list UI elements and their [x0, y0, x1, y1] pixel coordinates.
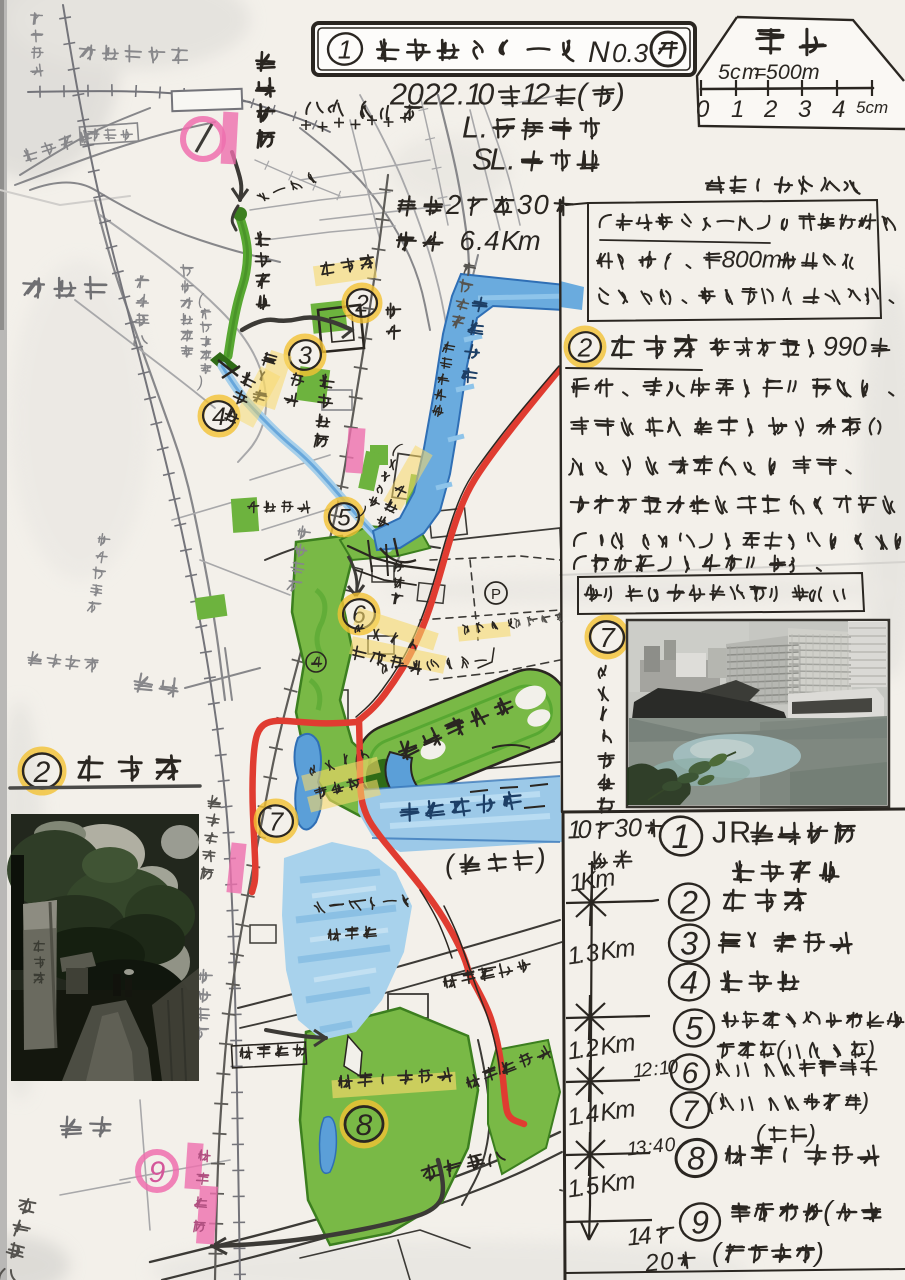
svg-text:.: .: [480, 111, 489, 145]
svg-text:2: 2: [532, 78, 550, 112]
svg-text:2: 2: [763, 96, 777, 123]
svg-text:8: 8: [722, 247, 736, 274]
svg-text:5: 5: [718, 60, 730, 84]
svg-text:9: 9: [691, 1205, 709, 1241]
svg-text:3: 3: [798, 96, 812, 123]
svg-text:m: m: [518, 225, 541, 256]
svg-text:3: 3: [298, 342, 312, 370]
svg-text:5: 5: [337, 505, 351, 532]
svg-text:3: 3: [614, 814, 629, 842]
svg-text:5: 5: [685, 1011, 703, 1047]
svg-text:.: .: [476, 225, 484, 256]
svg-text:m: m: [613, 1167, 637, 1197]
svg-text:J: J: [712, 816, 727, 850]
svg-text:3: 3: [680, 926, 698, 962]
svg-text:0.3: 0.3: [612, 38, 649, 68]
svg-text:4: 4: [680, 965, 698, 1001]
svg-text:0: 0: [534, 189, 550, 220]
svg-text:.: .: [507, 143, 516, 177]
svg-text:1: 1: [672, 818, 691, 856]
svg-text:7: 7: [599, 622, 616, 653]
svg-text:9: 9: [838, 331, 853, 361]
svg-text:2: 2: [439, 78, 457, 112]
svg-text:2: 2: [577, 332, 593, 362]
svg-text:1: 1: [731, 96, 744, 123]
svg-text:m: m: [613, 934, 637, 964]
svg-text:1: 1: [338, 34, 352, 64]
svg-text:0: 0: [577, 816, 592, 844]
svg-text:N: N: [588, 36, 610, 69]
svg-text:0: 0: [627, 814, 642, 842]
svg-text:2: 2: [354, 291, 368, 318]
svg-text:7: 7: [682, 1095, 700, 1128]
svg-text:4: 4: [832, 96, 845, 123]
svg-text:8: 8: [687, 1141, 705, 1177]
svg-text:5cm: 5cm: [856, 98, 888, 117]
svg-text:0: 0: [748, 247, 762, 274]
svg-text:m: m: [762, 247, 782, 274]
svg-text:6: 6: [460, 225, 476, 256]
svg-text:6: 6: [682, 1057, 699, 1090]
svg-text:): ): [196, 374, 203, 391]
svg-text:4: 4: [212, 403, 226, 431]
svg-text:2: 2: [445, 189, 461, 220]
svg-text:4: 4: [484, 225, 499, 256]
svg-text:P: P: [491, 586, 501, 603]
svg-text:m: m: [802, 60, 820, 84]
svg-text:0: 0: [735, 247, 749, 274]
svg-text:7: 7: [269, 806, 285, 836]
svg-text:4: 4: [637, 1222, 653, 1250]
svg-text:8: 8: [356, 1109, 373, 1142]
svg-text:2: 2: [679, 885, 698, 921]
svg-text:m: m: [613, 1029, 637, 1059]
svg-text:0: 0: [778, 60, 790, 84]
svg-text:L: L: [490, 143, 507, 177]
svg-text:0: 0: [696, 96, 710, 123]
svg-text:2: 2: [423, 78, 441, 112]
svg-text:R: R: [729, 816, 751, 850]
svg-text:0: 0: [790, 60, 802, 84]
svg-text:3: 3: [517, 189, 533, 220]
svg-text:m: m: [613, 1095, 637, 1125]
svg-text:9: 9: [149, 1156, 166, 1189]
svg-text:0: 0: [477, 78, 494, 112]
svg-text:9: 9: [823, 331, 838, 361]
svg-text:0: 0: [852, 331, 867, 361]
svg-text:L: L: [462, 111, 479, 145]
svg-text:=: =: [754, 60, 767, 84]
svg-text:2: 2: [33, 756, 51, 789]
